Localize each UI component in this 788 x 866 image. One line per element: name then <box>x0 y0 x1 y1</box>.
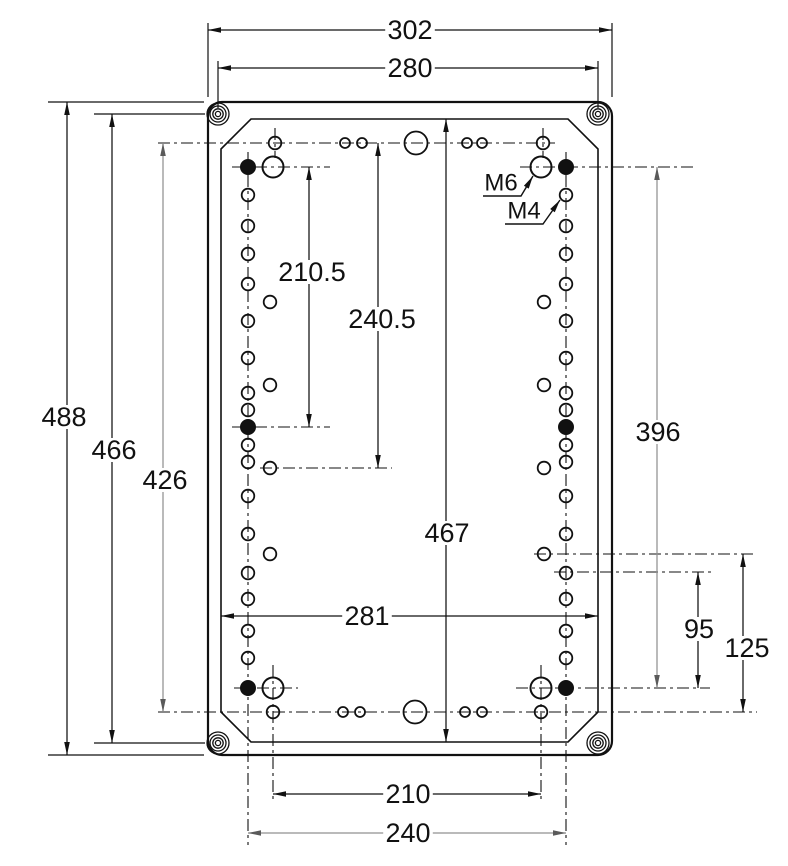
dimension-label-466: 466 <box>91 435 136 465</box>
technical-drawing-page: 302280488466426210.5240.5467396281951252… <box>0 0 788 861</box>
dimension-label-210.5: 210.5 <box>278 257 346 287</box>
fixing-hole-filled <box>241 681 256 696</box>
dimension-label-426: 426 <box>142 465 187 495</box>
fixing-hole-filled <box>559 160 574 175</box>
dimension-label-302: 302 <box>387 15 432 45</box>
thread-label-m6: M6 <box>484 170 517 197</box>
mounting-plate-drawing: 302280488466426210.5240.5467396281951252… <box>0 0 788 861</box>
fixing-hole-filled <box>559 420 574 435</box>
dimension-label-467: 467 <box>424 518 469 548</box>
dimension-label-280: 280 <box>387 53 432 83</box>
fixing-hole-filled <box>241 160 256 175</box>
dimension-label-95: 95 <box>684 614 714 644</box>
dimension-label-281: 281 <box>344 601 389 631</box>
dimension-label-240: 240 <box>385 818 430 848</box>
dimension-label-488: 488 <box>41 402 86 432</box>
fixing-hole-filled <box>241 420 256 435</box>
dimension-label-396: 396 <box>635 417 680 447</box>
dimension-label-210: 210 <box>385 779 430 809</box>
dimension-label-125: 125 <box>724 633 769 663</box>
thread-label-m4: M4 <box>507 198 540 225</box>
fixing-hole-filled <box>559 681 574 696</box>
dimension-label-240.5: 240.5 <box>348 304 416 334</box>
